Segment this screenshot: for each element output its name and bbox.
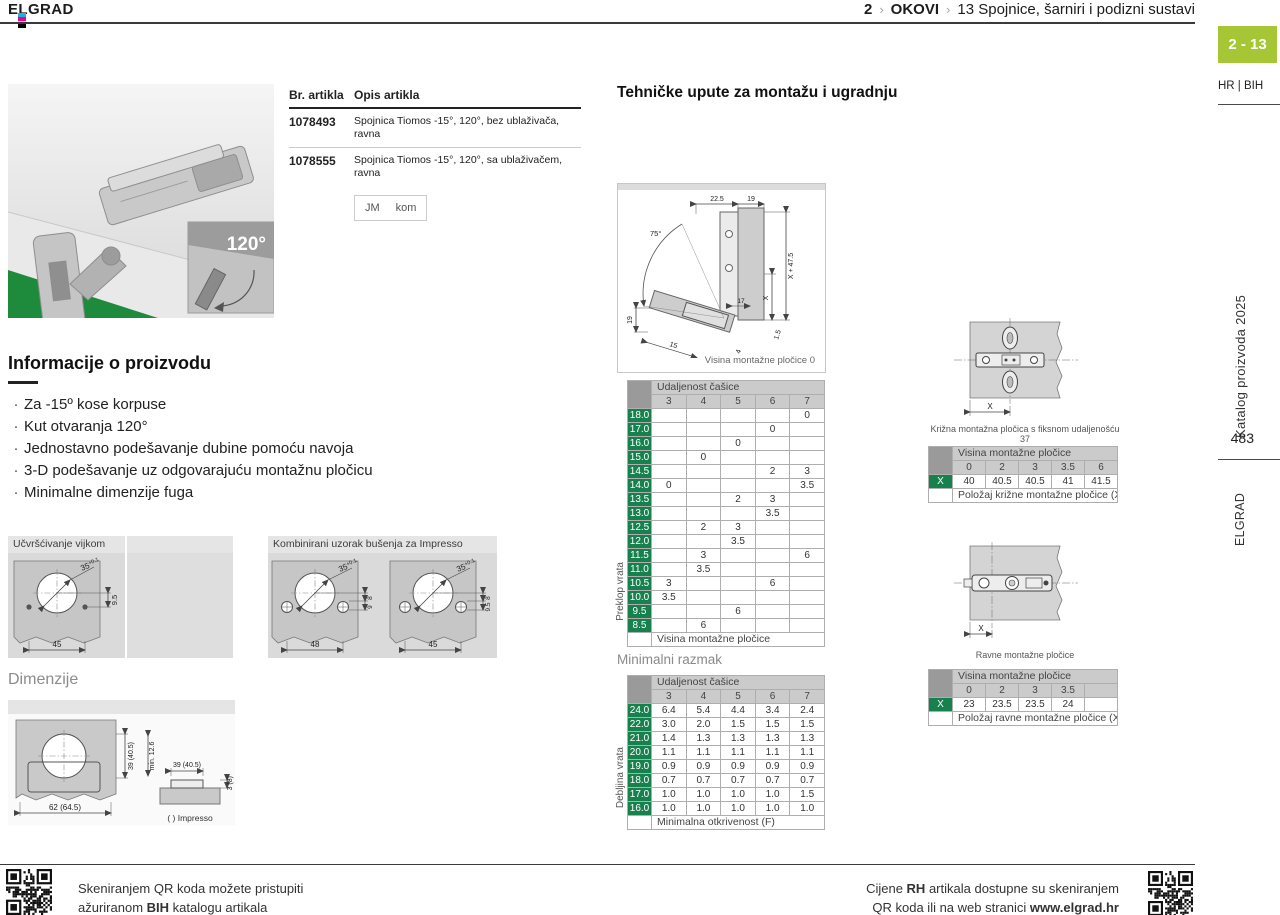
- table-row: X4040.540.54141.5: [929, 475, 1118, 489]
- article-description: Spojnica Tiomos -15°, 120°, sa ublaživač…: [354, 154, 572, 180]
- val: [652, 521, 687, 535]
- table-row: 10.536: [628, 577, 825, 591]
- val: 0.9: [721, 760, 756, 774]
- val: [721, 479, 756, 493]
- gfoot: Položaj križne montažne pločice (X): [953, 489, 1118, 503]
- chead: 3.5: [1052, 684, 1085, 698]
- val: 1.3: [686, 732, 721, 746]
- val: 24: [1052, 698, 1085, 712]
- table-row: 21.01.41.31.31.31.3: [628, 732, 825, 746]
- cross-plate-svg: X: [948, 318, 1083, 420]
- val: 1.1: [721, 746, 756, 760]
- val: 0: [721, 437, 756, 451]
- qr-code-bih: [6, 869, 52, 915]
- col-article-number: Br. artikla: [289, 88, 354, 102]
- ghead: Visina montažne pločice: [953, 447, 1118, 461]
- val: 1.0: [686, 788, 721, 802]
- val: [652, 563, 687, 577]
- val: [652, 493, 687, 507]
- catalog-page: ELGRAD 2›OKOVI›13 Spojnice, šarniri i po…: [0, 0, 1280, 915]
- val: 3.5: [652, 591, 687, 605]
- dimensions-panel: 39 (40.5) 62 (64.5) min. 12.6 39 (40.5) …: [8, 700, 235, 825]
- dim-19-top: 19: [747, 196, 755, 203]
- rlabel: 21.0: [628, 732, 652, 746]
- section-title-tech: Tehničke upute za montažu i ugradnju: [617, 84, 897, 102]
- chead: 2: [986, 461, 1019, 475]
- panel-title: [127, 536, 233, 553]
- rlabel: 11.0: [628, 563, 652, 577]
- val: 3.5: [790, 479, 825, 493]
- dim-x: X: [978, 624, 984, 633]
- rlabel: 12.0: [628, 535, 652, 549]
- rlabel: 10.5: [628, 577, 652, 591]
- chead: 3: [652, 690, 687, 704]
- table-row: 12.03.5: [628, 535, 825, 549]
- header-rule: [0, 22, 1195, 24]
- val: 1.3: [755, 732, 790, 746]
- table-row: 11.03.5: [628, 563, 825, 577]
- article-number: 1078555: [289, 154, 354, 180]
- dim-4: 4: [735, 349, 743, 355]
- grid-host: Visina montažne pločice0233.5X2323.523.5…: [928, 669, 1118, 726]
- val: 0.9: [790, 760, 825, 774]
- val: 0.7: [755, 774, 790, 788]
- flat-plate-table: Visina montažne pločice0233.5X2323.523.5…: [928, 669, 1118, 726]
- val: [755, 563, 790, 577]
- val: 1.1: [652, 746, 687, 760]
- sidebar-rule: [1218, 104, 1280, 105]
- val: 0.7: [790, 774, 825, 788]
- val: [755, 479, 790, 493]
- val: 3: [755, 493, 790, 507]
- val: [755, 549, 790, 563]
- chead: 0: [953, 684, 986, 698]
- table-row: 13.523: [628, 493, 825, 507]
- val: [686, 465, 721, 479]
- unit-value: kom: [396, 202, 417, 214]
- dim-plate: 3 (8): [227, 776, 234, 790]
- rlabel: 12.5: [628, 521, 652, 535]
- table-side-label: Preklop vrata: [615, 562, 626, 621]
- article-table-header: Br. artikla Opis artikla: [289, 88, 581, 109]
- rlabel: X: [929, 698, 953, 712]
- footer-line: ažuriranom BIH katalogu artikala: [78, 898, 303, 915]
- val: [652, 409, 687, 423]
- page-tab-badge: 2 - 13: [1218, 26, 1277, 63]
- dim-angle-75: 75°: [650, 229, 661, 238]
- impresso-drilling-drawing: 35+0.1 8 9 48: [268, 553, 497, 658]
- rlabel: 10.0: [628, 591, 652, 605]
- rlabel: 16.0: [628, 437, 652, 451]
- chead: 6: [1085, 461, 1118, 475]
- panel-title: Učvršćivanje vijkom: [8, 536, 125, 553]
- val: [790, 451, 825, 465]
- val: 5.4: [686, 704, 721, 718]
- breadcrumb: 2›OKOVI›13 Spojnice, šarniri i podizni s…: [864, 1, 1195, 18]
- bullet-item: ·3-D podešavanje uz odgovarajuću montažn…: [8, 460, 568, 482]
- feature-list: ·Za -15º kose korpuse·Kut otvaranja 120°…: [8, 394, 568, 504]
- chead: [1085, 684, 1118, 698]
- val: 1.0: [686, 802, 721, 816]
- rlabel: 24.0: [628, 704, 652, 718]
- val: [652, 451, 687, 465]
- panel-title: [8, 700, 235, 714]
- rlabel: 9.5: [628, 605, 652, 619]
- val: [790, 493, 825, 507]
- val: [790, 591, 825, 605]
- val: 0.9: [652, 760, 687, 774]
- fblank: [628, 633, 652, 647]
- rlabel: 16.0: [628, 802, 652, 816]
- dim-spacing-48: 48: [311, 640, 320, 649]
- val: [755, 451, 790, 465]
- val: [790, 521, 825, 535]
- cross-plate-drawing: X: [948, 318, 1083, 425]
- corner: [628, 676, 652, 704]
- val: 2: [721, 493, 756, 507]
- grid-host: Udaljenost čašice3456718.0017.0016.0015.…: [627, 380, 825, 647]
- dim-x: X: [763, 295, 770, 300]
- val: 41.5: [1085, 475, 1118, 489]
- rlabel: 20.0: [628, 746, 652, 760]
- chead: 5: [721, 395, 756, 409]
- val: [790, 423, 825, 437]
- val: 3.5: [755, 507, 790, 521]
- val: 0.7: [686, 774, 721, 788]
- chead: 3: [1019, 461, 1052, 475]
- article-table: Br. artikla Opis artikla 1078493 Spojnic…: [289, 88, 581, 221]
- val: 0.7: [652, 774, 687, 788]
- val: [755, 535, 790, 549]
- cross-plate-table: Visina montažne pločice0233.56X4040.540.…: [928, 446, 1118, 503]
- table-row: 14.523: [628, 465, 825, 479]
- corner: [628, 381, 652, 409]
- val: [686, 605, 721, 619]
- grid-table: Visina montažne pločice0233.56X4040.540.…: [928, 446, 1118, 503]
- val: 1.0: [790, 802, 825, 816]
- dim-spacing-45: 45: [429, 640, 438, 649]
- rlabel: 14.5: [628, 465, 652, 479]
- val: [755, 521, 790, 535]
- table-row: 8.56: [628, 619, 825, 633]
- val: 1.5: [721, 718, 756, 732]
- unit-of-measure-box: JM kom: [354, 195, 427, 221]
- flat-plate-caption: Ravne montažne pločice: [925, 650, 1125, 660]
- val: 1.3: [790, 732, 825, 746]
- dim-offset-9-5: 9.5: [485, 602, 492, 611]
- col-article-description: Opis artikla: [354, 88, 419, 102]
- val: [721, 465, 756, 479]
- table-row: 1078555 Spojnica Tiomos -15°, 120°, sa u…: [289, 148, 581, 186]
- door-profile: [160, 788, 220, 804]
- dim-1-5: 1.5: [773, 329, 783, 340]
- dim-screw-spacing: 45: [53, 640, 62, 649]
- footer-line: Skeniranjem QR koda možete pristupiti: [78, 879, 303, 898]
- val: [652, 535, 687, 549]
- val: 3.0: [652, 718, 687, 732]
- val: 3.4: [755, 704, 790, 718]
- table-row: 22.03.02.01.51.51.5: [628, 718, 825, 732]
- cross-plate-caption: Križna montažna pločica s fiksnom udalje…: [925, 424, 1125, 444]
- grid-table: Udaljenost čašice3456724.06.45.44.43.42.…: [627, 675, 825, 830]
- table-row: 18.00.70.70.70.70.7: [628, 774, 825, 788]
- dimensions-drawing: 39 (40.5) 62 (64.5) min. 12.6 39 (40.5) …: [8, 714, 235, 825]
- screw-fixing-panel: Učvršćivanje vijkom 35+0.1 9.5: [8, 536, 125, 658]
- dim-top: 39 (40.5): [173, 762, 201, 769]
- val: [721, 423, 756, 437]
- val: 1.0: [755, 788, 790, 802]
- chead: 6: [755, 690, 790, 704]
- val: 2.0: [686, 718, 721, 732]
- dim-offset-8: 8: [367, 596, 374, 600]
- section-title-info: Informacije o proizvodu: [8, 353, 211, 374]
- flat-plate-drawing: X: [948, 542, 1083, 647]
- val: 6: [686, 619, 721, 633]
- unit-label: JM: [365, 202, 380, 214]
- val: [790, 577, 825, 591]
- dim-screw-offset: 9.5: [110, 595, 119, 605]
- val: 3.5: [721, 535, 756, 549]
- val: 23: [953, 698, 986, 712]
- bullet-item: ·Kut otvaranja 120°: [8, 416, 568, 438]
- val: 6: [721, 605, 756, 619]
- dim-15: 15: [669, 341, 679, 350]
- grid-host: Udaljenost čašice3456724.06.45.44.43.42.…: [627, 675, 825, 830]
- rlabel: 18.0: [628, 409, 652, 423]
- val: 1.0: [652, 802, 687, 816]
- val: 1.5: [790, 788, 825, 802]
- table-row: 20.01.11.11.11.11.1: [628, 746, 825, 760]
- val: 3: [721, 521, 756, 535]
- rlabel: 17.0: [628, 423, 652, 437]
- val: [652, 549, 687, 563]
- val: [721, 507, 756, 521]
- val: 3: [790, 465, 825, 479]
- table-row: 9.56: [628, 605, 825, 619]
- corner: [929, 670, 953, 698]
- footer-left-text: Skeniranjem QR koda možete pristupiti až…: [78, 879, 303, 915]
- section-title-dimensions: Dimenzije: [8, 671, 78, 689]
- screw-fixing-drawing: 35+0.1 9.5 45: [8, 553, 125, 658]
- flat-plate-svg: X: [948, 542, 1083, 642]
- table-row: 12.523: [628, 521, 825, 535]
- val: [755, 409, 790, 423]
- impresso-note: ( ) Impresso: [167, 813, 213, 823]
- val: 0: [755, 423, 790, 437]
- val: [652, 605, 687, 619]
- val: 23.5: [986, 698, 1019, 712]
- chevron-right-icon: ›: [872, 2, 890, 17]
- val: 40.5: [986, 475, 1019, 489]
- drill-pattern-48: 35+0.1 8 9 48: [272, 558, 374, 653]
- val: 3.5: [686, 563, 721, 577]
- table-row: X2323.523.524: [929, 698, 1118, 712]
- dim-bottom: 62 (64.5): [49, 803, 81, 812]
- footer-line: Cijene RH artikala dostupne su skeniranj…: [800, 879, 1119, 898]
- val: [686, 591, 721, 605]
- rlabel: 14.0: [628, 479, 652, 493]
- val: 3: [686, 549, 721, 563]
- grid-table: Udaljenost čašice3456718.0017.0016.0015.…: [627, 380, 825, 647]
- sidebar-rule: [1218, 459, 1280, 460]
- val: [686, 409, 721, 423]
- rlabel: 19.0: [628, 760, 652, 774]
- val: 1.1: [790, 746, 825, 760]
- footer-rule: [0, 864, 1195, 865]
- rlabel: 18.0: [628, 774, 652, 788]
- fblank: [929, 712, 953, 726]
- grid-table: Visina montažne pločice0233.5X2323.523.5…: [928, 669, 1118, 726]
- val: [1085, 698, 1118, 712]
- table-side-label: Debljina vrata: [615, 747, 626, 808]
- val: [686, 535, 721, 549]
- rlabel: 13.5: [628, 493, 652, 507]
- val: [652, 465, 687, 479]
- rlabel: 15.0: [628, 451, 652, 465]
- title-underline: [8, 381, 38, 384]
- dim-x-47-5: X + 47.5: [788, 253, 795, 279]
- val: [686, 507, 721, 521]
- dim-x: X: [987, 402, 993, 411]
- val: 2: [755, 465, 790, 479]
- val: 0: [686, 451, 721, 465]
- impresso-drilling-panel: Kombinirani uzorak bušenja za Impresso 3…: [268, 536, 497, 658]
- val: [790, 563, 825, 577]
- bullet-item: ·Jednostavno podešavanje dubine pomoću n…: [8, 438, 568, 460]
- chead: 4: [686, 690, 721, 704]
- val: [721, 591, 756, 605]
- val: 6.4: [652, 704, 687, 718]
- dim-17: 17: [737, 298, 745, 305]
- empty-panel: [127, 536, 233, 658]
- chead: 2: [986, 684, 1019, 698]
- val: [652, 507, 687, 521]
- brand-vertical: ELGRAD: [1233, 486, 1247, 552]
- table-row: 1078493 Spojnica Tiomos -15°, 120°, bez …: [289, 109, 581, 148]
- dim-offset-9: 9: [367, 605, 374, 609]
- val: 1.1: [686, 746, 721, 760]
- val: [790, 507, 825, 521]
- val: [686, 437, 721, 451]
- val: 2.4: [790, 704, 825, 718]
- fblank: [628, 816, 652, 830]
- val: [755, 619, 790, 633]
- ghead: Udaljenost čašice: [652, 676, 825, 690]
- val: 0.9: [686, 760, 721, 774]
- val: [790, 535, 825, 549]
- dim-19-left: 19: [627, 316, 634, 324]
- chead: 3: [1019, 684, 1052, 698]
- gfoot: Visina montažne pločice: [652, 633, 825, 647]
- val: [721, 577, 756, 591]
- gfoot: Položaj ravne montažne pločice (X): [953, 712, 1118, 726]
- val: 2: [686, 521, 721, 535]
- overlay-table: Preklop vrata Udaljenost čašice3456718.0…: [615, 380, 825, 647]
- val: 1.0: [755, 802, 790, 816]
- bullet-item: ·Minimalne dimenzije fuga: [8, 482, 568, 504]
- val: [790, 605, 825, 619]
- table-row: 18.00: [628, 409, 825, 423]
- gfoot: Minimalna otkrivenost (F): [652, 816, 825, 830]
- table-row: 17.01.01.01.01.01.5: [628, 788, 825, 802]
- val: 3: [652, 577, 687, 591]
- chead: 7: [790, 395, 825, 409]
- article-number: 1078493: [289, 115, 354, 141]
- val: 0.7: [721, 774, 756, 788]
- val: 1.1: [755, 746, 790, 760]
- chead: 0: [953, 461, 986, 475]
- opening-angle-inset: 120°: [188, 222, 274, 313]
- chead: 3.5: [1052, 461, 1085, 475]
- qr-code-rh: [1148, 871, 1193, 915]
- table-row: 19.00.90.90.90.90.9: [628, 760, 825, 774]
- val: 23.5: [1019, 698, 1052, 712]
- dim-min-depth: min. 12.6: [149, 741, 156, 770]
- val: 1.0: [652, 788, 687, 802]
- mounting-section-drawing: 22.5 19 75° X + 47.5 X 17 19 15 4 1.5: [618, 190, 827, 358]
- val: [686, 577, 721, 591]
- table-row: 15.00: [628, 451, 825, 465]
- val: 6: [790, 549, 825, 563]
- val: 1.5: [790, 718, 825, 732]
- dim-22-5: 22.5: [710, 196, 724, 203]
- ghead: Udaljenost čašice: [652, 381, 825, 395]
- dim-side: 39 (40.5): [128, 742, 135, 770]
- val: [721, 549, 756, 563]
- rlabel: 8.5: [628, 619, 652, 633]
- val: [721, 619, 756, 633]
- article-description: Spojnica Tiomos -15°, 120°, bez ublaživa…: [354, 115, 572, 141]
- rlabel: 11.5: [628, 549, 652, 563]
- chead: 3: [652, 395, 687, 409]
- language-label: HR | BIH: [1218, 80, 1263, 92]
- val: 1.5: [755, 718, 790, 732]
- screw-hole: [82, 604, 87, 609]
- val: [755, 437, 790, 451]
- chead: 7: [790, 690, 825, 704]
- registration-mark-icon: [18, 13, 26, 28]
- table-row: 16.01.01.01.01.01.0: [628, 802, 825, 816]
- panel-title: Kombinirani uzorak bušenja za Impresso: [268, 536, 497, 553]
- val: [721, 451, 756, 465]
- grid-host: Visina montažne pločice0233.56X4040.540.…: [928, 446, 1118, 503]
- val: 0: [790, 409, 825, 423]
- table-row: 24.06.45.44.43.42.4: [628, 704, 825, 718]
- table-row: 11.536: [628, 549, 825, 563]
- bullet-item: ·Za -15º kose korpuse: [8, 394, 568, 416]
- rlabel: 13.0: [628, 507, 652, 521]
- section-title-min-gap: Minimalni razmak: [617, 652, 722, 667]
- chead: 4: [686, 395, 721, 409]
- page-number: 483: [1218, 430, 1254, 446]
- val: [652, 437, 687, 451]
- rlabel: 17.0: [628, 788, 652, 802]
- table-row: 14.003.5: [628, 479, 825, 493]
- ghead: Visina montažne pločice: [953, 670, 1118, 684]
- dim-offset-8: 8: [485, 596, 492, 600]
- corner: [929, 447, 953, 475]
- hinge-photo-illustration: 120°: [8, 84, 274, 318]
- val: 6: [755, 577, 790, 591]
- val: 40: [953, 475, 986, 489]
- opening-angle-label: 120°: [227, 234, 266, 255]
- product-image: 120°: [8, 84, 274, 318]
- table-row: 17.00: [628, 423, 825, 437]
- val: [755, 591, 790, 605]
- drawing-caption: Visina montažne pločice 0: [705, 355, 815, 366]
- val: 1.3: [721, 732, 756, 746]
- val: 1.4: [652, 732, 687, 746]
